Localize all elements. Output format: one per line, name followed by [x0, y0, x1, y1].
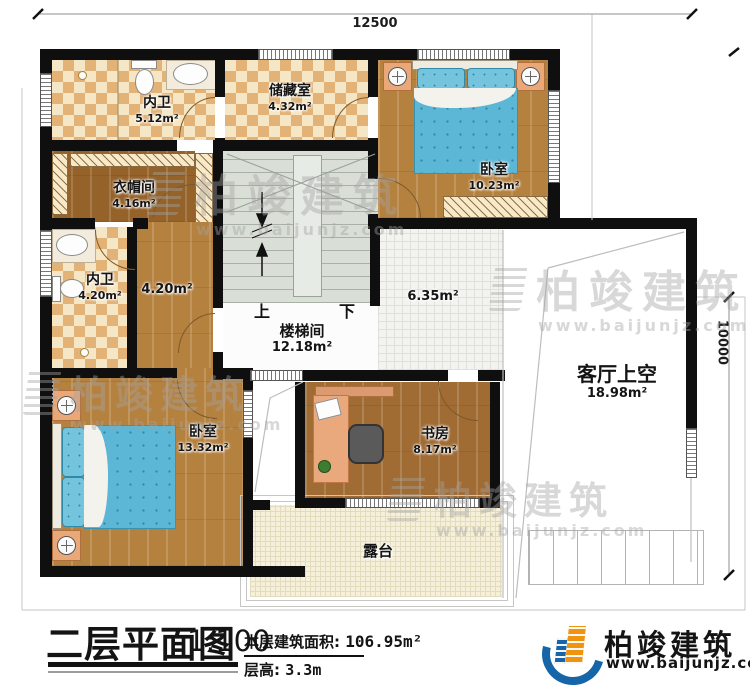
pillow-icon: [62, 477, 85, 527]
wall-segment: [40, 218, 95, 229]
floor-height-value: 3.3m: [285, 661, 321, 679]
room-area: 10.23m²: [444, 179, 544, 192]
room-area: 18.98m²: [547, 386, 687, 402]
closet-bedroom-top: [443, 196, 548, 218]
room-area: 5.12m²: [107, 112, 207, 125]
window: [258, 49, 333, 60]
floor-drain-icon: [80, 348, 89, 357]
room-label-storage: 储藏室 4.32m²: [240, 83, 340, 113]
wall-segment: [40, 368, 177, 378]
room-label-terrace: 露台: [328, 542, 428, 560]
lamp-icon: [57, 396, 76, 415]
stair-up-label: 上: [254, 298, 270, 322]
room-label-cloakroom: 衣帽间 4.16m²: [84, 180, 184, 210]
title-underline-thick: [48, 662, 238, 667]
floor-height-label: 层高:: [244, 661, 280, 679]
window: [250, 370, 303, 381]
room-name: 露台: [328, 542, 428, 560]
room-area: 8.17m²: [385, 443, 485, 456]
room-area: 13.32m²: [153, 441, 253, 454]
floor-area-label: 本层建筑面积:: [244, 633, 340, 651]
window: [345, 498, 480, 508]
wall-segment: [686, 218, 697, 428]
room-name: 内卫: [107, 95, 207, 112]
floor-drain-icon: [78, 71, 87, 80]
watermark: 柏竣建筑 www.baijunjz.com: [492, 256, 749, 335]
window: [417, 49, 510, 60]
stair-down-label: 下: [339, 298, 355, 322]
wall-segment: [480, 498, 500, 508]
pergola-slats: [528, 530, 704, 585]
room-name: 卧室: [444, 162, 544, 179]
room-name: 储藏室: [240, 83, 340, 100]
room-area: 6.35m²: [383, 289, 483, 305]
toilet-bowl-icon: [135, 69, 154, 95]
closet-cloakroom-top: [70, 153, 195, 167]
wall-segment: [368, 49, 378, 97]
room-area: 4.20m²: [117, 282, 217, 298]
plant-icon: [318, 460, 331, 473]
wall-segment: [478, 370, 505, 381]
wall-segment: [490, 382, 500, 508]
pillow-icon: [62, 427, 85, 477]
room-name: 客厅上空: [547, 362, 687, 386]
sink-basin-icon: [56, 234, 88, 256]
toilet-tank-icon: [131, 60, 157, 69]
lamp-icon: [521, 67, 540, 86]
wall-segment: [40, 140, 177, 151]
room-label-study: 书房 8.17m²: [385, 426, 485, 456]
office-chair-icon: [348, 424, 384, 464]
window: [548, 90, 560, 183]
wall-segment: [40, 566, 305, 577]
room-area: 12.18m²: [252, 340, 352, 356]
room-name: 卧室: [153, 424, 253, 441]
stair-stringer: [293, 155, 322, 297]
wall-segment: [303, 370, 448, 381]
watermark-brand: 柏竣建筑: [536, 256, 748, 320]
room-area: 4.16m²: [84, 197, 184, 210]
wall-segment: [295, 382, 305, 508]
pillow-icon: [467, 68, 515, 89]
dimension-right: 10000: [715, 313, 730, 373]
room-label-corridor: 4.20m²: [117, 282, 217, 298]
room-label-stairwell: 楼梯间 12.18m²: [252, 322, 352, 356]
wall-segment: [215, 138, 225, 151]
wall-segment: [370, 229, 380, 306]
lamp-icon: [388, 67, 407, 86]
title-underline-thin: [48, 671, 238, 673]
wall-segment: [368, 214, 378, 229]
floor-area-value: 106.95m²: [345, 632, 422, 651]
company-url: www.baijunjz.com: [606, 654, 750, 672]
wall-segment: [295, 498, 345, 508]
titleblock-divider: [244, 655, 364, 657]
room-label-bath-top: 内卫 5.12m²: [107, 95, 207, 125]
room-label-hall: 6.35m²: [383, 289, 483, 305]
room-name: 楼梯间: [252, 322, 352, 340]
room-label-bedroom-top: 卧室 10.23m²: [444, 162, 544, 192]
room-name: 书房: [385, 426, 485, 443]
room-area: 4.32m²: [240, 100, 340, 113]
wall-segment: [375, 218, 697, 229]
room-name: 衣帽间: [84, 180, 184, 197]
wall-segment: [40, 49, 52, 577]
pillow-icon: [417, 68, 465, 89]
lamp-icon: [57, 536, 76, 555]
wall-segment: [225, 140, 378, 151]
window: [686, 428, 697, 478]
floor-plan-canvas: 内卫 5.12m² 储藏室 4.32m² 卧室 10.23m² 衣帽间 4.16…: [0, 0, 750, 687]
wall-segment: [250, 500, 270, 510]
room-label-bedroom-bottom: 卧室 13.32m²: [153, 424, 253, 454]
wall-segment: [215, 49, 225, 97]
closet-cloakroom-left: [52, 153, 68, 215]
bed-headboard: [52, 423, 62, 529]
window: [40, 73, 52, 127]
sink-basin-icon: [173, 63, 208, 85]
dimension-top: 12500: [325, 16, 425, 31]
floor-height-row: 层高: 3.3m: [244, 659, 321, 680]
room-label-living-void: 客厅上空 18.98m²: [547, 362, 687, 402]
floor-area-row: 本层建筑面积: 106.95m²: [244, 631, 422, 652]
